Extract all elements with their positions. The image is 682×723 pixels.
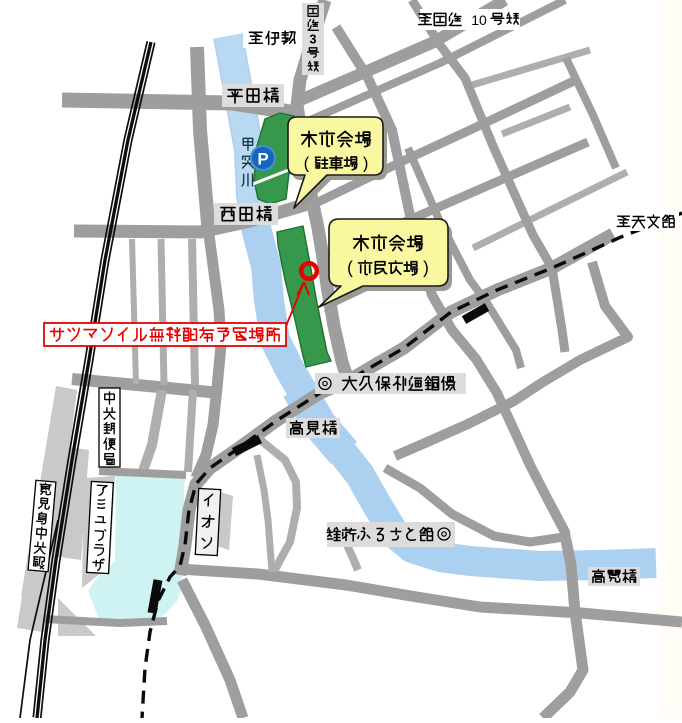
svg-text:P: P [257, 150, 268, 169]
svg-text:(: ( [304, 154, 310, 173]
svg-text:(: ( [347, 258, 353, 278]
svg-text:): ) [423, 258, 429, 278]
svg-text:10: 10 [471, 12, 487, 28]
svg-text:): ) [363, 154, 369, 173]
svg-text:3: 3 [310, 33, 317, 47]
